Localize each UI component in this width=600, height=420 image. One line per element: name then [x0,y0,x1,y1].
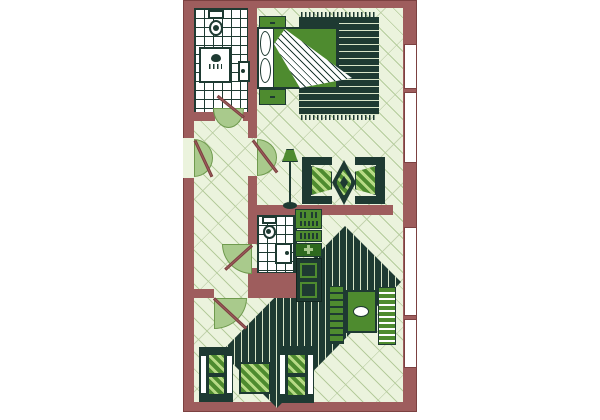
floor-plan-canvas [0,0,600,420]
wall-hall-bottom [194,289,214,298]
nightstand-top-handle [270,22,275,24]
shower-head-icon [211,54,221,62]
window-sitting [404,92,417,163]
sofa-left-cushion-2 [208,376,225,395]
toilet-1-seat-dot [213,25,219,31]
kitchen-counter-slot [298,233,318,239]
window-living [404,319,417,368]
wall-bathroom2-bottom [248,273,297,298]
stove-oven-slot [298,221,318,226]
toilet-2-tank [262,216,277,224]
window-dining [404,227,417,316]
sofa-right-armrest-inner [279,354,286,395]
stove-burner-1 [298,212,307,218]
sink-2 [275,243,292,264]
floor-lamp-base [283,202,297,209]
armchair-left-arm-bottom [302,196,332,204]
sofa-right-cushion-2 [287,376,306,396]
sofa-right-armrest-outer [307,354,314,395]
sink-2-drain-dot [285,251,289,255]
kitchen-unit-plus-v [307,245,310,254]
entry-door-opening [183,138,194,178]
sink-1-drain-dot [241,69,245,73]
nightstand-bottom-handle [270,96,275,98]
sofa-right-cushion-1 [287,354,306,374]
dining-chair-right [378,287,396,345]
fridge-door-panel-1 [300,263,317,278]
ottoman [239,362,271,394]
dining-chair-left [329,286,344,344]
armchair-left-arm-top [302,157,332,165]
floor-lamp-pole [289,162,291,204]
sofa-left-armrest-inner [226,355,233,394]
armchair-right-arm-top [355,157,385,165]
wall-bathroom1-bottom [194,112,215,121]
dining-plate [353,306,369,317]
window-bedroom [404,44,417,89]
shower-spray-icon [209,64,222,69]
sofa-left-cushion-1 [208,354,225,374]
armchair-right-arm-bottom [355,196,385,204]
fridge-door-panel-2 [300,282,317,298]
sofa-left-armrest-outer [200,355,207,394]
toilet-1-tank [208,10,224,19]
toilet-2-seat-dot [266,229,271,234]
stove-burner-2 [309,212,318,218]
bedroom-rug-fringe-bottom [301,115,377,120]
